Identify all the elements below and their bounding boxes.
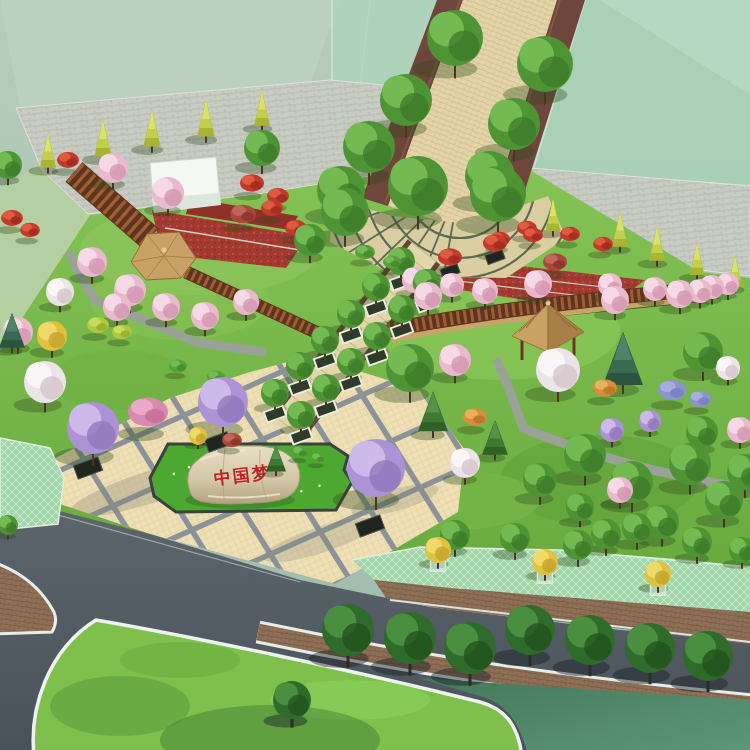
tree-shadow [350,260,373,267]
shrub-shade [96,323,107,331]
shrub-shade [250,181,262,189]
canopy-shade [404,362,430,388]
tree-red [483,234,507,251]
tree-red [57,152,79,168]
flower-dot [318,484,321,487]
flower-dot [300,490,303,493]
shrub-shade [29,229,39,236]
tree-shadow [555,242,578,249]
shrub-shade [299,451,307,457]
tree-shadow [457,426,485,434]
tree-shadow [288,458,306,464]
canopy-shade [553,364,577,388]
tree-shadow [165,373,186,379]
canopy-shade [288,695,309,716]
tree-shadow [118,427,164,441]
canopy-shade [655,570,669,584]
canopy-shade [339,206,365,232]
canopy-shade [5,161,20,176]
tree-bush [311,453,325,463]
shrub-shade [317,457,324,462]
canopy-shade [40,376,63,399]
canopy-shade [634,524,651,541]
canopy-shade [462,459,479,476]
tree-shadow [651,401,683,411]
tree-redleaf [222,433,242,447]
canopy-shade [49,332,66,349]
canopy-shade [452,531,469,548]
shrub-shade [276,194,287,202]
canopy-shade [342,623,371,652]
tree-shadow [52,168,77,176]
shrub-shade [121,331,131,338]
tree-shadow [131,145,163,155]
canopy-shade [449,30,480,61]
canopy-shade [612,296,627,311]
canopy-shade [492,186,523,217]
tree-orange [593,379,617,396]
tree-bush [169,360,187,373]
canopy-shade [400,93,429,122]
canopy-shade [542,558,556,572]
canopy-shade [374,332,389,347]
canopy-shade [272,389,287,404]
tree-red [261,200,283,216]
shrub-shade [270,206,281,214]
shrub-shade [10,216,21,224]
canopy-shade [658,517,677,536]
canopy-shade [297,362,312,377]
shrub-shade [569,233,579,240]
tree-shadow [476,453,506,462]
tree-shadow [107,340,130,347]
canopy-shade [575,541,592,558]
tree-shadow [684,407,709,415]
tree-ygbush [87,317,109,333]
canopy-shade [584,633,612,661]
canopy-shade [617,486,631,500]
tree-red [438,248,462,265]
canopy-shade [425,292,440,307]
shrub-shade [532,234,542,241]
shrub-shade [670,388,684,398]
tree-shadow [82,333,107,341]
tree-ygbush [112,325,132,339]
canopy-shade [451,356,469,374]
canopy-shade [677,290,692,305]
shrub-shade [66,158,77,166]
tree-bush [383,256,401,269]
shrub-shade [603,386,615,394]
tree-shadow [185,135,217,145]
shrub-shade [493,241,505,249]
canopy-shade [482,287,496,301]
canopy-shade [694,538,711,555]
canopy-shade [243,298,257,312]
tree-red [560,227,580,241]
shrub-shade [602,243,612,250]
canopy-shade [6,522,17,533]
canopy-shade [609,427,622,440]
canopy-shade [348,310,363,325]
canopy-shade [539,56,570,87]
canopy-shade [725,365,738,378]
shrub-shade [553,260,565,268]
canopy-shade [196,434,206,444]
canopy-shade [363,140,392,169]
canopy-shade [399,305,414,320]
tree-shadow [638,259,668,268]
tree-flw [128,398,168,427]
canopy-shade [89,258,106,275]
canopy-shade [512,534,529,551]
canopy-shade [57,288,72,303]
canopy-shade [535,280,550,295]
shrub-shade [698,397,709,405]
shrub-shade [364,251,374,258]
canopy-shade [603,530,620,547]
canopy-shade [404,631,433,660]
tree-lav [689,391,711,407]
canopy-shade [577,503,592,518]
canopy-shade [508,117,537,146]
tree-red [240,174,264,191]
canopy-shade [164,189,182,207]
shrub-shade [177,365,186,371]
tree-shadow [588,252,611,259]
shrub-shade [231,439,241,446]
canopy-shade [702,649,730,677]
canopy-shade [87,421,116,450]
tree-lav [658,380,686,400]
canopy-shade [369,460,401,492]
tree-shadow [256,216,281,224]
tree-redleaf [543,253,567,270]
canopy-shade [306,236,324,254]
shrub-shade [241,212,254,221]
canopy-shade [652,286,665,299]
canopy-shade [725,281,737,293]
canopy-shade [322,336,337,351]
canopy-shade [217,395,245,423]
tree-orange [463,408,487,425]
tree-shadow [234,192,262,200]
shrub-shade [391,261,400,267]
flower-dot [173,473,176,476]
canopy-shade [110,164,127,181]
shrub-shade [145,409,165,423]
canopy-shade [114,303,129,318]
canopy-shade [163,303,178,318]
canopy-shade [435,546,449,560]
tree-bush [292,446,308,458]
canopy-shade [697,288,710,301]
canopy-shade [411,178,444,211]
shrub-shade [473,415,485,423]
canopy-shade [698,428,716,446]
canopy-shade [536,475,555,494]
canopy-shade [449,282,462,295]
canopy-shade [647,418,659,430]
tree-shadow [587,397,615,405]
landscape-render: 中国梦 [0,0,750,750]
tree-shadow [261,471,284,478]
canopy-shade [202,312,217,327]
tree-red [593,237,613,251]
tree-shadow [308,463,324,468]
tree-shadow [518,243,541,250]
tree-redleaf [230,205,256,224]
canopy-shade [580,449,603,472]
canopy-shade [348,358,363,373]
canopy-shade [685,458,708,481]
canopy-shade [720,495,741,516]
tree-shadow [411,430,446,441]
tree-red [523,228,543,242]
tree-red [20,223,40,237]
canopy-shade [323,384,338,399]
canopy-shade [298,411,313,426]
canopy-shade [644,641,672,669]
canopy-shade [464,641,493,670]
park-render-canvas: 中国梦 [0,0,750,750]
tree-shadow [15,238,38,245]
canopy-shade [524,623,552,651]
canopy-shade [258,143,278,163]
tree-bush [355,245,375,259]
canopy-shade [373,283,388,298]
shrub-shade [448,255,460,263]
tree-red [1,210,23,226]
tree-shadow [224,224,254,233]
